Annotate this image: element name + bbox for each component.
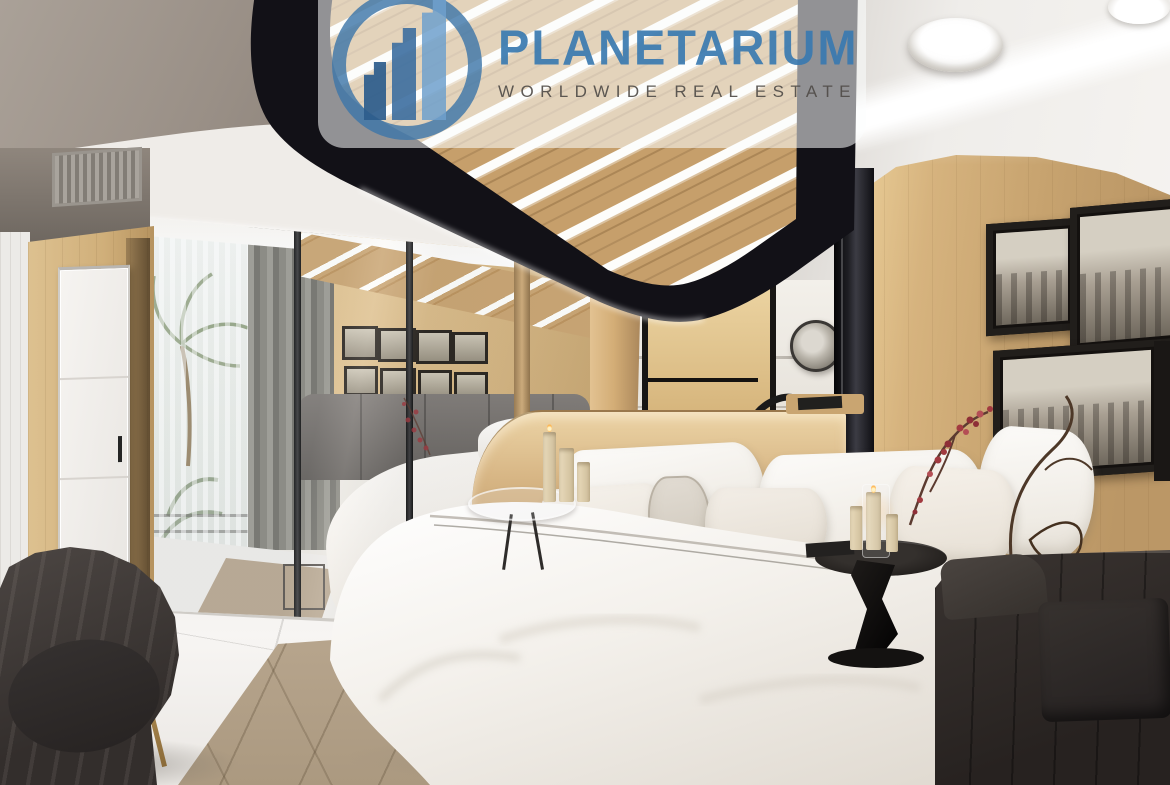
pillar-candle [886, 514, 898, 552]
brand-tagline: WORLDWIDE REAL ESTATE [498, 82, 859, 102]
brand-name: PLANETARIUM [498, 19, 859, 76]
sofa-cushion [1038, 598, 1170, 722]
table-base [828, 648, 924, 668]
listing-photo-bedroom-render: PLANETARIUM WORLDWIDE REAL ESTATE [0, 0, 1170, 785]
logo-building-bar [422, 0, 446, 120]
planetarium-logo-icon [332, 0, 482, 140]
red-blossoms [913, 406, 994, 515]
brand-watermark: PLANETARIUM WORLDWIDE REAL ESTATE [318, 0, 866, 148]
sofa-throw [940, 552, 1049, 621]
candle-flame [871, 485, 876, 493]
